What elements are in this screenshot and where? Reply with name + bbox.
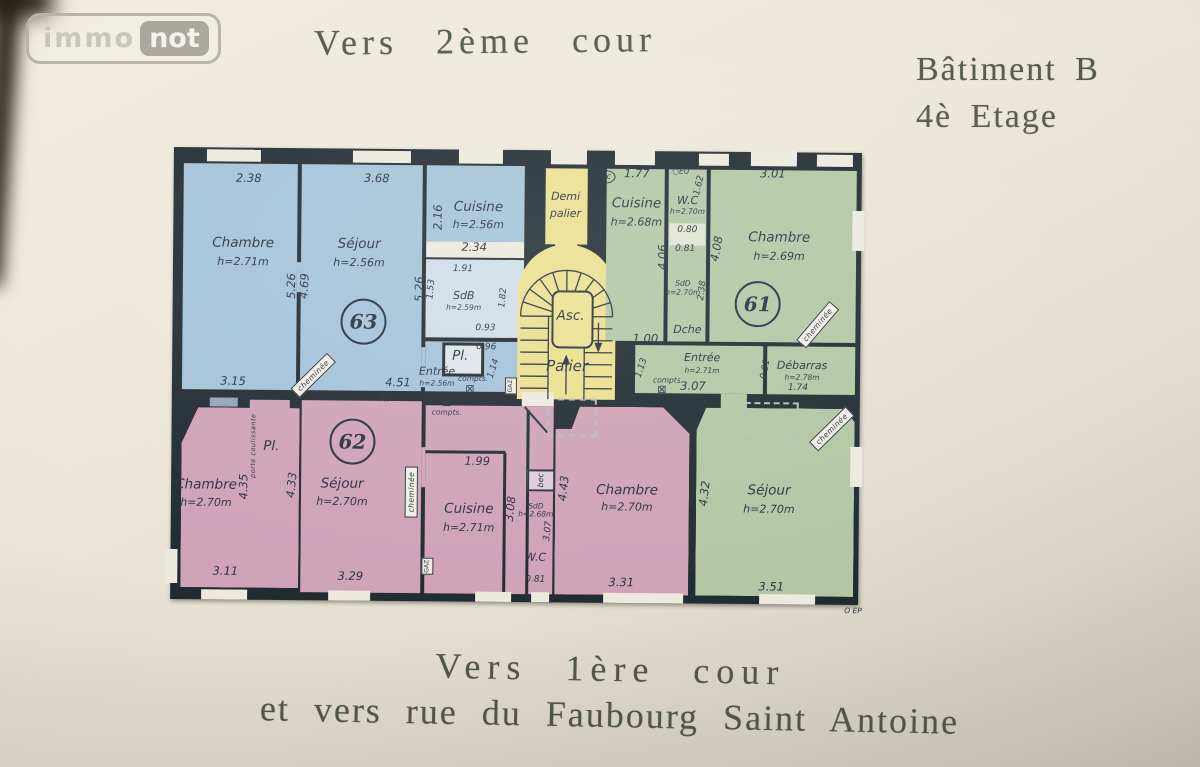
landing-label-demi-palier: Demi	[551, 191, 580, 202]
room-label-sejour-61: Séjour	[747, 484, 790, 498]
plan-annotation: h=2.70m	[743, 503, 795, 514]
plan-annotation: 4.35	[238, 474, 250, 500]
plan-annotation: h=2.69m	[753, 251, 805, 262]
plan-annotation: 3.29	[337, 571, 363, 583]
sliding-door-note: porte coulissante	[250, 413, 257, 478]
bec-tag: bec	[592, 170, 617, 184]
plan-annotation: h=2.70m	[180, 497, 232, 508]
plan-annotation: Pl.	[378, 395, 389, 404]
plan-annotation: h=2.56m	[333, 257, 385, 268]
immonot-logo: immo not	[26, 13, 221, 64]
apartment-number-61: 61	[734, 281, 780, 327]
room-label-chambre-61: Chambre	[748, 231, 810, 245]
room-label-entree-61: Entrée	[684, 352, 720, 363]
room-label-cuisine-62: Cuisine	[444, 503, 494, 517]
floor-plan: 2.383.682.16Cuisineh=2.56mChambreh=2.71m…	[163, 145, 867, 617]
plan-annotation: 1.91	[453, 265, 473, 274]
room-label-sdb-63: SdB	[453, 290, 475, 301]
plan-annotation: 4.08	[709, 235, 725, 262]
plan-annotation: 1.74	[788, 384, 808, 393]
gas-meter-tag: GAZ	[421, 558, 433, 575]
plan-annotation: 0.80	[677, 226, 697, 235]
plan-annotation: 3.15	[220, 376, 246, 388]
plan-annotation: 0.96	[476, 343, 496, 352]
plan-annotation: 1.82	[498, 287, 509, 308]
building-caption: Bâtiment B 4è Etage	[916, 46, 1100, 140]
plan-annotation: h=2.70m	[601, 501, 653, 512]
landing-label-palier: Palier	[546, 359, 588, 374]
photo-edge-shadow	[0, 0, 23, 287]
plan-annotation: palier	[550, 208, 581, 219]
plan-annotation: h=2.78m	[784, 374, 819, 382]
plan-annotation: 3.31	[608, 577, 634, 589]
room-label-cuisine-63: Cuisine	[454, 201, 504, 215]
meter-icon: ⊠	[657, 384, 666, 395]
plan-annotation: 2.38	[697, 280, 709, 301]
plan-annotation: h=2.70m	[665, 289, 700, 297]
plan-annotation: 3.68	[364, 173, 390, 185]
room-label-pl-62: Pl.	[263, 440, 279, 454]
room-label-wc-62: W.C	[525, 552, 546, 563]
room-label-debarras-61: Débarras	[777, 360, 828, 371]
ep-annotation: O EP	[844, 607, 862, 615]
building-name: Bâtiment B	[916, 46, 1100, 93]
room-label-chambre-62: Chambre	[175, 478, 237, 492]
cheminee-tag: cheminée	[796, 301, 839, 348]
room-label-sejour-62: Séjour	[321, 478, 364, 492]
plan-annotation: 4.69	[298, 273, 311, 299]
plan-annotation: 1.00	[633, 333, 659, 345]
plan-annotation: 2.16	[433, 204, 445, 230]
apartment-number-63: 63	[340, 298, 386, 344]
plan-annotation: 1.14	[487, 358, 502, 380]
plan-annotation: 3.07	[680, 381, 706, 393]
plan-annotation: 3.08	[504, 496, 518, 523]
plan-annotation: h=2.56m	[453, 219, 505, 230]
plan-annotation: 1.62	[693, 175, 706, 197]
plan-annotation: h=2.71m	[685, 367, 720, 375]
plan-annotation: 3.01	[760, 168, 786, 180]
plan-annotation: 4.43	[557, 475, 571, 502]
floor-name: 4è Etage	[916, 93, 1100, 140]
plan-annotation: 0.81	[525, 576, 545, 585]
meter-icon: ⊠	[465, 383, 474, 394]
bec-tag: bec	[527, 469, 555, 492]
gas-meter-tag: GAZ	[505, 377, 517, 394]
logo-text-not: not	[140, 21, 209, 56]
apartment-number-62: 62	[329, 418, 375, 464]
eu-drain-mark: ○EU	[672, 168, 689, 176]
plan-annotation: 0.81	[675, 245, 695, 254]
room-label-cuisine-61: Cuisine	[612, 197, 662, 211]
plan-annotation: 0.93	[475, 324, 495, 333]
caption-vers-2eme-cour: Vers 2ème cour	[255, 18, 715, 65]
plan-annotation: 2.38	[236, 173, 262, 185]
room-label-sdd-61: SdD	[675, 280, 690, 288]
room-label-chambre-63: Chambre	[212, 237, 274, 251]
cheminee-tag: cheminée	[809, 406, 854, 451]
plan-annotation: 5.26	[414, 276, 426, 302]
plan-annotation: 4.06	[657, 244, 669, 270]
scanned-floor-plan-page: immo not Vers 2ème cour Bâtiment B 4è Et…	[0, 0, 1200, 767]
room-label-dche-61: Dche	[673, 324, 701, 335]
room-label-pl-63: Pl.	[452, 350, 468, 364]
plan-annotation: compts.	[432, 409, 462, 417]
plan-annotation: 3.07	[543, 521, 554, 542]
plan-annotation: 1.53	[426, 279, 437, 300]
room-label-chambre-62b: Chambre	[596, 484, 658, 498]
room-label-entree-63: Entrée	[419, 366, 455, 377]
cheminee-tag: cheminée	[291, 353, 336, 398]
plan-annotation: h=2.68m	[611, 216, 663, 227]
plan-annotation: 0.91	[760, 359, 773, 380]
plan-annotation: h=2.70m	[670, 208, 705, 216]
plan-annotation: 4.51	[385, 377, 411, 389]
plan-annotation: 3.51	[758, 581, 784, 593]
plan-annotation: 1.77	[624, 168, 650, 180]
plan-annotation: h=2.59m	[446, 304, 481, 312]
plan-annotation: 3.11	[212, 566, 238, 578]
cheminee-tag: cheminée	[405, 467, 418, 518]
plan-annotation: 4.32	[698, 480, 712, 507]
plan-annotation: h=2.70m	[316, 496, 368, 507]
plan-annotation: 1.99	[464, 456, 490, 468]
plan-annotation: 2.34	[461, 242, 487, 254]
plan-annotation: h=2.68m	[518, 510, 553, 518]
plan-annotation: 1.13	[635, 357, 650, 379]
elevator-label: Asc.	[557, 310, 585, 324]
plan-annotation: h=2.56m	[419, 379, 454, 387]
plan-annotation: h=2.71m	[217, 256, 269, 267]
room-label-sejour-63: Séjour	[338, 238, 381, 252]
plan-annotation: h=2.71m	[443, 522, 495, 533]
meter-icon: ⊠	[442, 397, 451, 408]
plan-labels: 2.383.682.16Cuisineh=2.56mChambreh=2.71m…	[163, 145, 867, 617]
logo-text-immo: immo	[43, 23, 135, 54]
plan-annotation: 4.33	[285, 472, 299, 499]
footer-caption: Vers 1ère cour et vers rue du Faubourg S…	[69, 638, 1150, 747]
room-label-wc-61: W.C	[677, 195, 698, 206]
